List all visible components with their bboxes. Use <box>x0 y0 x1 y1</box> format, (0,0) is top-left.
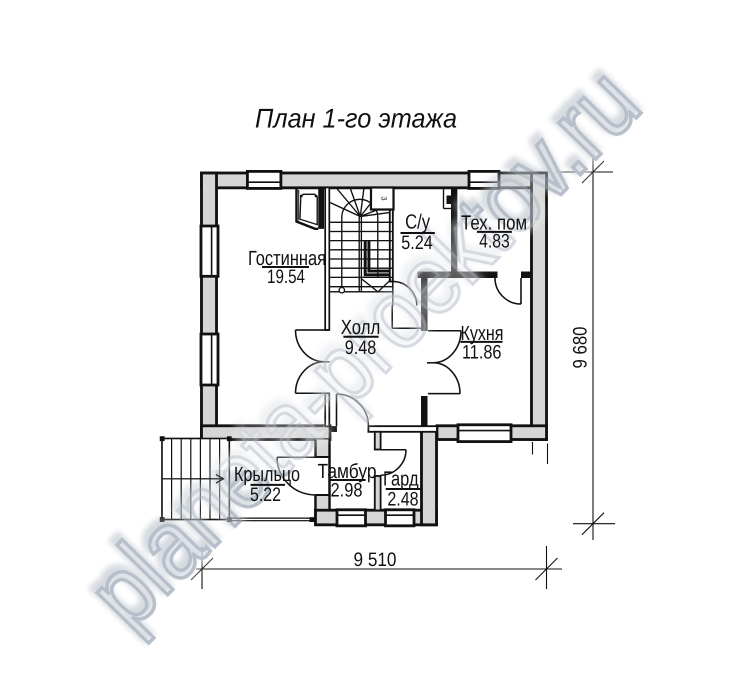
svg-text:С/у: С/у <box>405 210 431 233</box>
svg-text:Гард: Гард <box>383 468 419 491</box>
svg-text:11.86: 11.86 <box>462 342 502 364</box>
svg-text:5.24: 5.24 <box>401 232 433 254</box>
svg-text:Крыльцо: Крыльцо <box>234 463 300 486</box>
svg-text:19.54: 19.54 <box>267 266 305 288</box>
svg-text:4.83: 4.83 <box>479 231 510 253</box>
svg-text:5.22: 5.22 <box>250 484 281 506</box>
svg-text:9 680: 9 680 <box>570 326 592 368</box>
svg-text:2.98: 2.98 <box>331 479 363 501</box>
svg-text:9 510: 9 510 <box>354 549 397 571</box>
svg-text:9.48: 9.48 <box>345 337 377 359</box>
svg-text:План 1-го этажа: План 1-го этажа <box>255 104 457 134</box>
svg-text:2.48: 2.48 <box>387 489 418 511</box>
svg-text:Холл: Холл <box>341 316 381 339</box>
